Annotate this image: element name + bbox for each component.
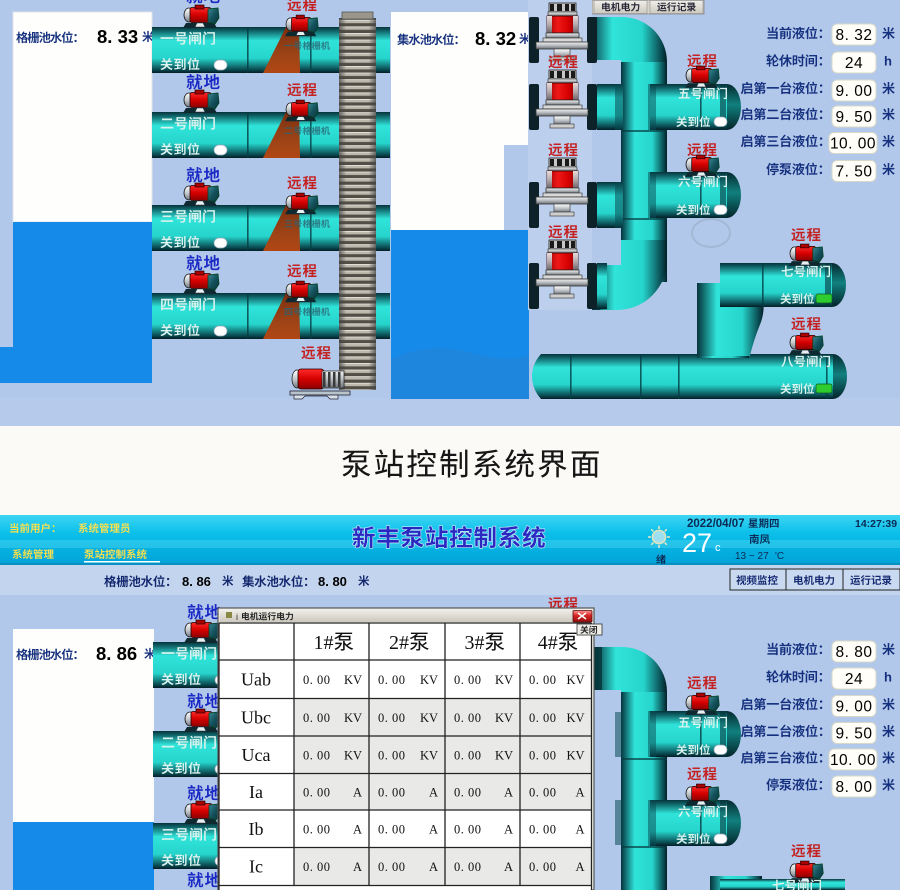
svg-text:9. 50: 9. 50 [836, 109, 873, 126]
svg-text:3#: 3# [465, 632, 485, 654]
svg-text:0. 00: 0. 00 [303, 673, 331, 687]
svg-text:A: A [429, 822, 438, 836]
svg-text:0. 00: 0. 00 [454, 673, 482, 687]
svg-text:0. 00: 0. 00 [454, 748, 482, 762]
svg-text:0. 00: 0. 00 [378, 860, 406, 874]
svg-text:0. 00: 0. 00 [303, 785, 331, 799]
svg-text:A: A [575, 860, 584, 874]
svg-text:2#: 2# [389, 632, 409, 654]
svg-text:0. 00: 0. 00 [303, 711, 331, 725]
svg-text:0. 00: 0. 00 [529, 673, 557, 687]
svg-text:0. 00: 0. 00 [378, 785, 406, 799]
svg-text:8. 33: 8. 33 [97, 26, 138, 47]
svg-text:0. 00: 0. 00 [529, 785, 557, 799]
svg-text:KV: KV [566, 711, 584, 725]
svg-text:24: 24 [845, 55, 863, 72]
svg-text:13 ~ 27: 13 ~ 27 [735, 551, 769, 562]
svg-text:0. 00: 0. 00 [529, 711, 557, 725]
svg-text:9. 00: 9. 00 [836, 83, 873, 100]
svg-text:h: h [884, 670, 892, 685]
svg-text:KV: KV [344, 711, 362, 725]
svg-text:1#: 1# [314, 632, 334, 654]
svg-text:i: i [236, 612, 238, 622]
svg-text:A: A [504, 860, 513, 874]
svg-text:8. 86: 8. 86 [96, 643, 137, 664]
svg-text:A: A [575, 785, 584, 799]
svg-text:Ia: Ia [249, 782, 263, 802]
svg-text:4#: 4# [538, 632, 558, 654]
svg-text:A: A [353, 860, 362, 874]
svg-text:c: c [715, 542, 721, 554]
svg-text:0. 00: 0. 00 [303, 822, 331, 836]
svg-text:14:27:39: 14:27:39 [855, 518, 897, 530]
svg-text:0. 00: 0. 00 [378, 748, 406, 762]
svg-text:Ubc: Ubc [241, 707, 271, 727]
svg-text:KV: KV [495, 673, 513, 687]
svg-text:7. 50: 7. 50 [836, 164, 873, 181]
svg-text:'C: 'C [775, 551, 784, 562]
svg-text:0. 00: 0. 00 [378, 673, 406, 687]
svg-text:0. 00: 0. 00 [529, 860, 557, 874]
svg-text:A: A [575, 822, 584, 836]
svg-text:0. 00: 0. 00 [454, 785, 482, 799]
svg-text:Uab: Uab [241, 669, 271, 689]
svg-text:0. 00: 0. 00 [303, 748, 331, 762]
svg-text:0. 00: 0. 00 [378, 822, 406, 836]
svg-text:8. 86: 8. 86 [182, 574, 211, 589]
svg-text:A: A [504, 785, 513, 799]
svg-text:0. 00: 0. 00 [303, 860, 331, 874]
svg-text:10. 00: 10. 00 [830, 136, 876, 153]
svg-text:0. 00: 0. 00 [529, 748, 557, 762]
svg-text:KV: KV [495, 748, 513, 762]
svg-text:KV: KV [344, 673, 362, 687]
svg-text:Uca: Uca [242, 745, 271, 765]
svg-text:8. 32: 8. 32 [475, 28, 516, 49]
svg-text:Ib: Ib [249, 819, 264, 839]
svg-text:10. 00: 10. 00 [830, 752, 876, 769]
svg-text:h: h [884, 54, 892, 69]
svg-text:8. 80: 8. 80 [836, 644, 873, 661]
svg-text:9. 00: 9. 00 [836, 699, 873, 716]
svg-text:KV: KV [566, 748, 584, 762]
svg-text:8. 32: 8. 32 [836, 27, 873, 44]
svg-text:24: 24 [845, 671, 863, 688]
svg-text:0. 00: 0. 00 [529, 822, 557, 836]
svg-text:KV: KV [420, 711, 438, 725]
svg-text:0. 00: 0. 00 [454, 822, 482, 836]
svg-text:A: A [504, 822, 513, 836]
svg-text:0. 00: 0. 00 [454, 860, 482, 874]
svg-text:8. 00: 8. 00 [836, 779, 873, 796]
svg-text:Ic: Ic [249, 857, 263, 877]
svg-text:A: A [429, 785, 438, 799]
svg-text:A: A [353, 785, 362, 799]
svg-text:0. 00: 0. 00 [378, 711, 406, 725]
svg-text:KV: KV [420, 748, 438, 762]
svg-text:A: A [353, 822, 362, 836]
svg-text:KV: KV [420, 673, 438, 687]
svg-text:KV: KV [495, 711, 513, 725]
svg-text:27: 27 [682, 528, 712, 558]
svg-text:KV: KV [566, 673, 584, 687]
svg-text:8. 80: 8. 80 [318, 574, 347, 589]
svg-text:0. 00: 0. 00 [454, 711, 482, 725]
svg-text:A: A [429, 860, 438, 874]
svg-text:KV: KV [344, 748, 362, 762]
svg-text:9. 50: 9. 50 [836, 726, 873, 743]
